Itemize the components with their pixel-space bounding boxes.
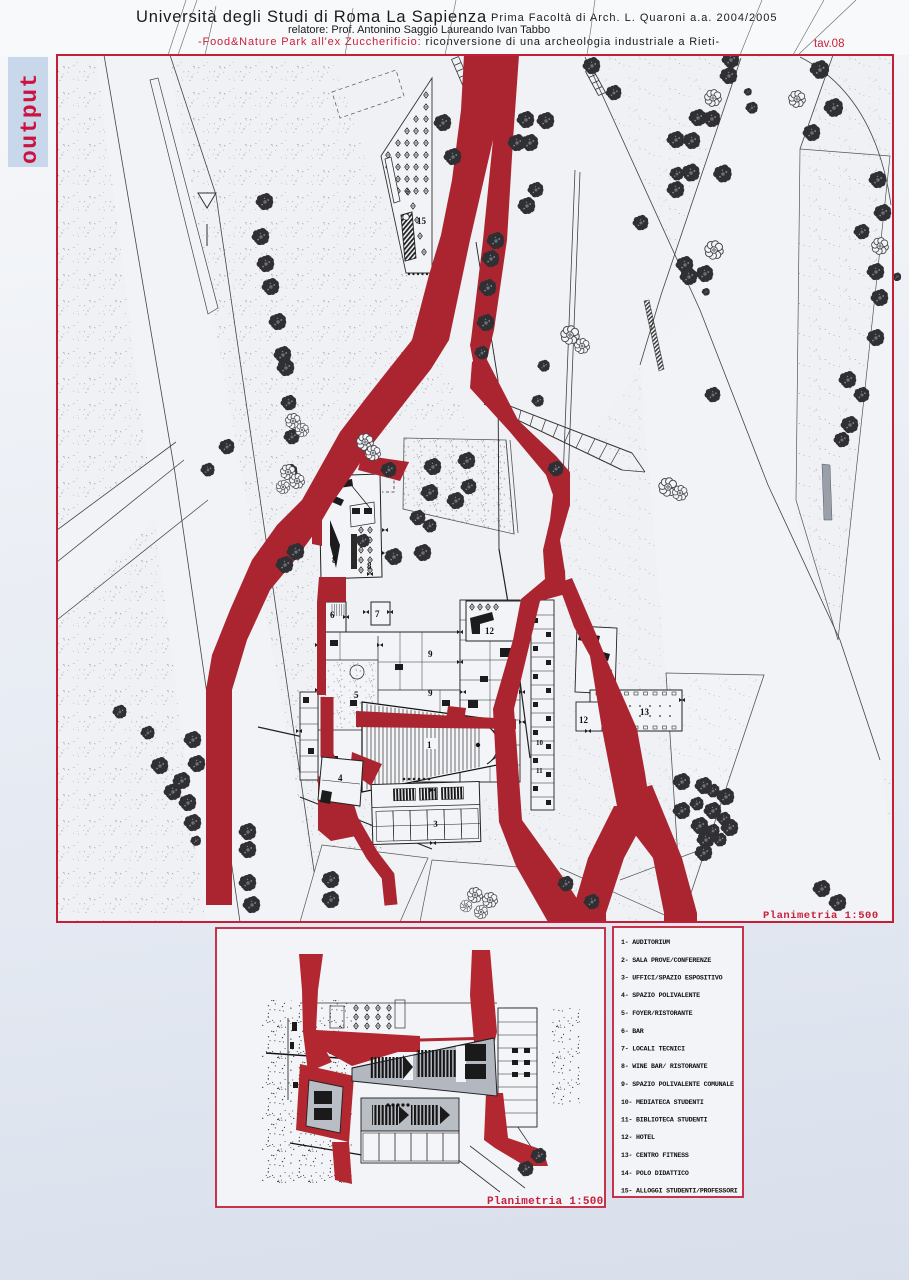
svg-text:1: 1 bbox=[427, 740, 432, 750]
svg-text:9: 9 bbox=[428, 649, 433, 659]
svg-text:13: 13 bbox=[640, 707, 650, 717]
svg-text:11: 11 bbox=[536, 767, 543, 775]
svg-text:12: 12 bbox=[579, 715, 589, 725]
svg-text:8: 8 bbox=[367, 561, 372, 571]
svg-text:12- HOTEL: 12- HOTEL bbox=[621, 1134, 655, 1141]
svg-text:10- MEDIATECA STUDENTI: 10- MEDIATECA STUDENTI bbox=[621, 1099, 704, 1106]
svg-text:Planimetria 1:500: Planimetria 1:500 bbox=[763, 910, 879, 922]
svg-text:relatore: Prof. Antonino Saggi: relatore: Prof. Antonino Saggio Laureand… bbox=[288, 24, 550, 36]
svg-text:output: output bbox=[17, 72, 43, 164]
svg-text:11- BIBLIOTECA STUDENTI: 11- BIBLIOTECA STUDENTI bbox=[621, 1117, 708, 1124]
svg-text:7: 7 bbox=[375, 609, 380, 619]
svg-text:6- BAR: 6- BAR bbox=[621, 1028, 644, 1035]
svg-text:tav.08: tav.08 bbox=[814, 38, 844, 50]
svg-text:12: 12 bbox=[485, 626, 495, 636]
svg-text:5: 5 bbox=[354, 690, 359, 700]
svg-text:8- WINE BAR/ RISTORANTE: 8- WINE BAR/ RISTORANTE bbox=[621, 1063, 708, 1070]
svg-text:8: 8 bbox=[332, 555, 337, 565]
svg-text:9- SPAZIO POLIVALENTE COMUNALE: 9- SPAZIO POLIVALENTE COMUNALE bbox=[621, 1081, 734, 1088]
svg-text:10: 10 bbox=[536, 739, 544, 747]
svg-text:7- LOCALI TECNICI: 7- LOCALI TECNICI bbox=[621, 1046, 685, 1053]
svg-text:3: 3 bbox=[433, 819, 438, 829]
svg-text:2- SALA PROVE/CONFERENZE: 2- SALA PROVE/CONFERENZE bbox=[621, 957, 711, 964]
svg-text:14- POLO DIDATTICO: 14- POLO DIDATTICO bbox=[621, 1170, 689, 1177]
svg-text:3- UFFICI/SPAZIO ESPOSITIVO: 3- UFFICI/SPAZIO ESPOSITIVO bbox=[621, 975, 723, 982]
svg-text:15: 15 bbox=[417, 216, 427, 226]
svg-text:-Food&Nature Park all'ex Zucch: -Food&Nature Park all'ex Zuccherificio: … bbox=[198, 36, 720, 48]
svg-text:13- CENTRO FITNESS: 13- CENTRO FITNESS bbox=[621, 1152, 689, 1159]
svg-text:Prima Facoltà di Arch. L. Quar: Prima Facoltà di Arch. L. Quaroni a.a. 2… bbox=[491, 12, 777, 24]
svg-text:4- SPAZIO POLIVALENTE: 4- SPAZIO POLIVALENTE bbox=[621, 992, 700, 999]
svg-text:9: 9 bbox=[428, 688, 433, 698]
svg-text:15- ALLOGGI STUDENTI/PROFESSOR: 15- ALLOGGI STUDENTI/PROFESSORI bbox=[621, 1188, 738, 1195]
svg-text:5- FOYER/RISTORANTE: 5- FOYER/RISTORANTE bbox=[621, 1010, 693, 1017]
svg-text:1- AUDITORIUM: 1- AUDITORIUM bbox=[621, 939, 670, 946]
svg-text:4: 4 bbox=[338, 773, 343, 783]
svg-text:Planimetria 1:500: Planimetria 1:500 bbox=[487, 1196, 603, 1208]
